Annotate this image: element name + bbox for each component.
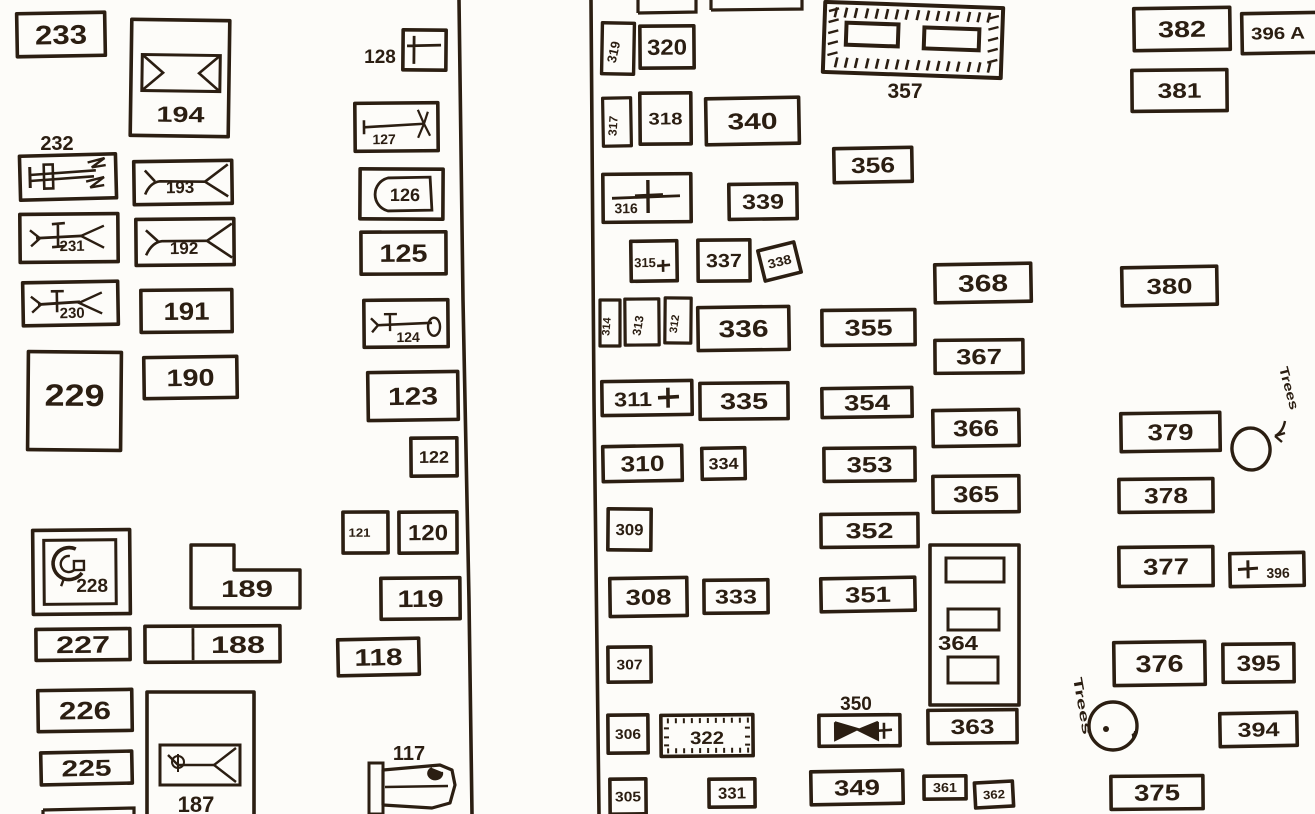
svg-text:188: 188 — [211, 632, 265, 659]
svg-text:230: 230 — [60, 305, 85, 322]
svg-text:352: 352 — [845, 518, 893, 543]
svg-text:367: 367 — [956, 344, 1002, 369]
svg-text:187: 187 — [178, 792, 215, 814]
svg-text:233: 233 — [35, 20, 88, 51]
svg-text:333: 333 — [715, 586, 757, 608]
svg-text:228: 228 — [76, 576, 108, 597]
svg-text:351: 351 — [845, 582, 891, 608]
svg-text:305: 305 — [615, 788, 641, 804]
svg-text:339: 339 — [742, 191, 784, 215]
svg-text:225: 225 — [61, 754, 112, 781]
svg-text:232: 232 — [40, 133, 73, 155]
svg-text:355: 355 — [844, 314, 892, 340]
svg-text:349: 349 — [834, 775, 880, 801]
svg-text:363: 363 — [950, 716, 994, 739]
svg-text:119: 119 — [397, 586, 443, 613]
svg-text:124: 124 — [396, 329, 420, 345]
svg-text:364: 364 — [938, 633, 979, 655]
svg-text:309: 309 — [615, 522, 643, 539]
svg-text:117: 117 — [393, 743, 425, 765]
svg-text:128: 128 — [364, 47, 396, 68]
svg-text:118: 118 — [354, 644, 403, 672]
svg-text:314: 314 — [600, 316, 614, 336]
svg-text:335: 335 — [720, 388, 768, 414]
svg-text:190: 190 — [166, 365, 214, 393]
svg-text:226: 226 — [59, 697, 111, 726]
svg-text:357: 357 — [887, 80, 922, 103]
svg-text:378: 378 — [1144, 483, 1188, 508]
svg-text:123: 123 — [388, 382, 438, 411]
svg-text:320: 320 — [647, 35, 687, 60]
svg-text:310: 310 — [620, 451, 664, 477]
svg-text:377: 377 — [1143, 553, 1189, 579]
svg-text:396: 396 — [1266, 565, 1290, 581]
svg-text:120: 120 — [408, 520, 448, 545]
svg-text:189: 189 — [221, 576, 273, 603]
svg-text:356: 356 — [851, 152, 895, 178]
svg-text:194: 194 — [156, 102, 205, 128]
svg-text:396 A: 396 A — [1251, 24, 1305, 44]
svg-text:231: 231 — [59, 238, 84, 255]
svg-text:331: 331 — [718, 785, 746, 802]
svg-text:317: 317 — [605, 115, 620, 136]
svg-text:229: 229 — [44, 378, 104, 414]
svg-text:379: 379 — [1147, 419, 1193, 446]
svg-text:375: 375 — [1134, 779, 1180, 805]
svg-text:227: 227 — [56, 632, 110, 659]
svg-text:307: 307 — [616, 656, 642, 672]
svg-text:316: 316 — [614, 200, 638, 216]
svg-text:193: 193 — [166, 178, 195, 197]
svg-text:350: 350 — [840, 694, 872, 715]
svg-text:311: 311 — [614, 389, 652, 412]
svg-text:126: 126 — [390, 185, 420, 205]
svg-text:125: 125 — [379, 240, 427, 268]
svg-text:376: 376 — [1135, 651, 1183, 679]
svg-text:127: 127 — [372, 131, 396, 147]
svg-text:315: 315 — [634, 255, 656, 270]
svg-text:366: 366 — [953, 415, 999, 442]
svg-text:394: 394 — [1237, 719, 1280, 742]
svg-text:380: 380 — [1146, 273, 1192, 299]
svg-text:121: 121 — [348, 526, 370, 540]
svg-text:322: 322 — [690, 728, 724, 748]
svg-text:381: 381 — [1157, 80, 1202, 103]
svg-text:308: 308 — [625, 584, 671, 610]
svg-text:192: 192 — [170, 239, 199, 258]
svg-text:365: 365 — [953, 481, 999, 507]
svg-text:353: 353 — [846, 452, 892, 477]
svg-text:318: 318 — [648, 109, 682, 128]
svg-text:361: 361 — [933, 780, 957, 795]
svg-text:340: 340 — [727, 108, 777, 135]
svg-text:368: 368 — [958, 270, 1008, 298]
svg-text:122: 122 — [419, 448, 449, 467]
svg-text:354: 354 — [844, 390, 891, 416]
svg-text:362: 362 — [983, 787, 1006, 802]
svg-text:395: 395 — [1236, 651, 1280, 676]
svg-text:334: 334 — [708, 456, 738, 474]
svg-text:191: 191 — [163, 298, 209, 326]
svg-text:337: 337 — [706, 251, 742, 272]
svg-text:336: 336 — [718, 316, 768, 344]
svg-text:382: 382 — [1158, 16, 1206, 43]
svg-text:306: 306 — [615, 726, 641, 742]
